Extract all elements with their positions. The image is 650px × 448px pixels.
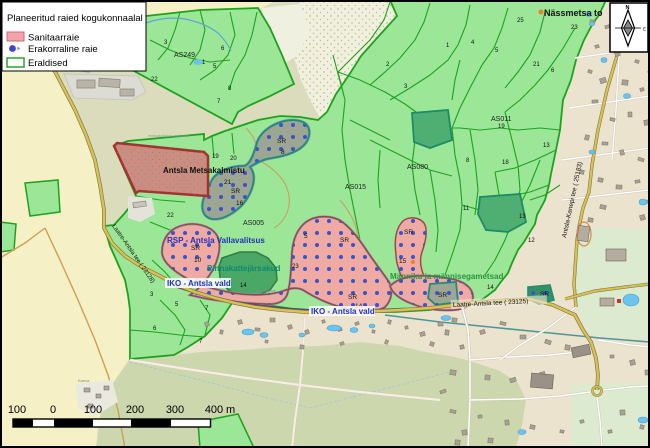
svg-text:19: 19: [212, 154, 219, 160]
svg-text:metsakalmistu piirkond: metsakalmistu piirkond: [148, 133, 189, 138]
svg-text:100: 100: [84, 404, 102, 416]
svg-text:300: 300: [166, 404, 184, 416]
svg-text:100: 100: [8, 404, 26, 416]
svg-text:22: 22: [151, 77, 158, 83]
svg-text:5: 5: [304, 233, 308, 240]
svg-text:18: 18: [502, 160, 509, 166]
svg-text:SR: SR: [191, 245, 200, 252]
svg-text:Männiku ja männisegametsad: Männiku ja männisegametsad: [390, 272, 503, 281]
svg-text:400: 400: [205, 404, 223, 416]
svg-text:13: 13: [519, 214, 526, 220]
svg-text:11: 11: [463, 206, 470, 212]
svg-text:SR: SR: [348, 294, 357, 301]
svg-text:AS249: AS249: [174, 52, 195, 59]
svg-text:lehtpuupark: lehtpuupark: [255, 288, 276, 293]
svg-text:SR: SR: [231, 188, 240, 195]
svg-text:21: 21: [224, 179, 232, 186]
svg-text:Erakorraline raie: Erakorraline raie: [28, 44, 98, 55]
svg-text:200: 200: [126, 404, 144, 416]
svg-text:N: N: [626, 5, 630, 11]
svg-text:IKO - Antsla vald: IKO - Antsla vald: [167, 279, 231, 288]
svg-text:20: 20: [230, 156, 237, 162]
svg-text:0: 0: [50, 404, 56, 416]
svg-text:m: m: [226, 404, 235, 416]
svg-text:AS005: AS005: [243, 220, 264, 227]
svg-text:14: 14: [487, 285, 494, 291]
svg-text:SR: SR: [404, 229, 413, 236]
svg-text:10: 10: [194, 257, 202, 264]
svg-text:12: 12: [528, 238, 535, 244]
svg-text:19: 19: [498, 124, 505, 130]
svg-text:15: 15: [399, 258, 407, 265]
svg-text:22: 22: [167, 213, 174, 219]
svg-text:RSP - Antsla Vallavalitsus: RSP - Antsla Vallavalitsus: [167, 236, 265, 245]
svg-text:23: 23: [571, 25, 578, 31]
svg-text:SR: SR: [438, 292, 447, 299]
svg-text:IKO - Antsla vald: IKO - Antsla vald: [311, 307, 375, 316]
svg-text:21: 21: [533, 62, 540, 68]
svg-text:AS015: AS015: [345, 184, 366, 191]
svg-text:Kaeva: Kaeva: [78, 378, 90, 383]
svg-text:AS011: AS011: [491, 116, 512, 123]
svg-text:Eraldised: Eraldised: [28, 58, 68, 69]
svg-text:16: 16: [236, 200, 244, 207]
svg-text:14: 14: [240, 283, 247, 289]
svg-text:Pinnakattejärsakud: Pinnakattejärsakud: [207, 264, 280, 273]
svg-text:AS080: AS080: [407, 164, 428, 171]
svg-text:13: 13: [543, 143, 550, 149]
svg-text:Antsla Metsakalmistu: Antsla Metsakalmistu: [163, 166, 245, 175]
svg-text:25: 25: [517, 18, 524, 24]
svg-text:23: 23: [292, 264, 299, 270]
svg-text:8: 8: [281, 149, 285, 156]
svg-text:E: E: [643, 27, 646, 32]
svg-text:Planeeritud raied kogukonnaala: Planeeritud raied kogukonnaalal: [7, 13, 143, 24]
svg-text:SR: SR: [340, 237, 349, 244]
svg-text:SR: SR: [277, 138, 286, 145]
svg-text:Sanitaarraie: Sanitaarraie: [28, 33, 79, 44]
svg-text:Nässmetsa to: Nässmetsa to: [544, 8, 603, 18]
